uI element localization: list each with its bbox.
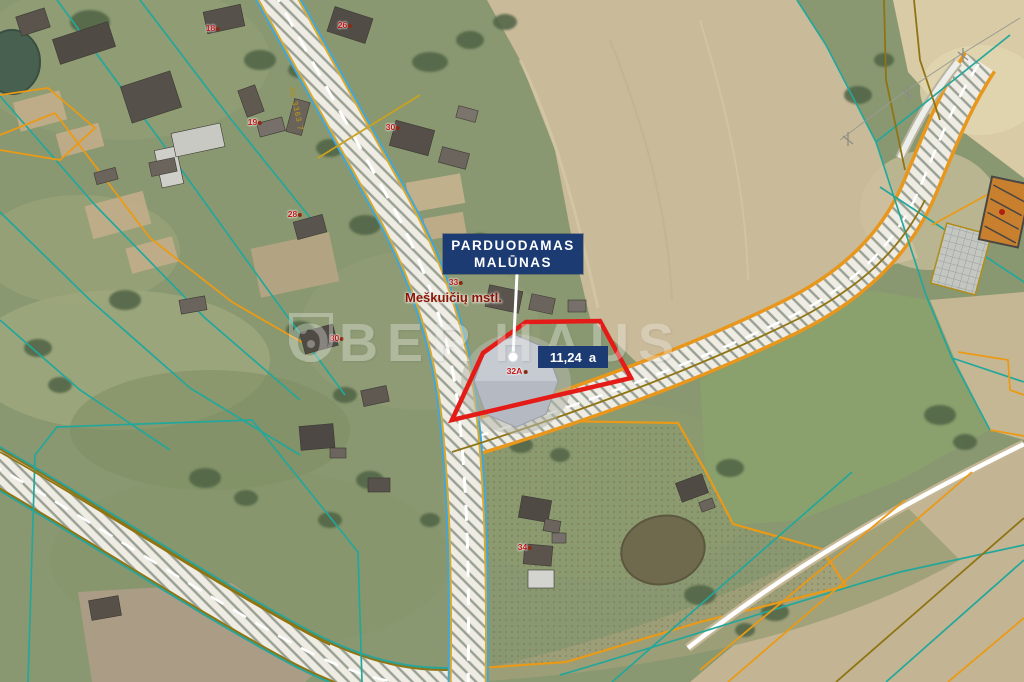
house-number-label: 32A — [507, 366, 528, 376]
house-number-label: 34 — [518, 542, 532, 552]
for-sale-line1: PARDUODAMAS — [451, 237, 575, 254]
house-number-label: 19 — [248, 117, 262, 127]
area-label: 11,24 a — [538, 346, 608, 368]
for-sale-label: PARDUODAMAS MALŪNAS — [443, 234, 583, 274]
house-number-label: 30 — [386, 122, 400, 132]
house-number-label: 33 — [449, 277, 463, 287]
house-number-label: 30 — [330, 333, 344, 343]
map-canvas — [0, 0, 1024, 682]
for-sale-line2: MALŪNAS — [474, 254, 552, 271]
house-number-label: 18 — [206, 23, 220, 33]
aerial-map-image: OBER HAUS PARDUODAMAS MALŪNAS 11,24 a Me… — [0, 0, 1024, 682]
house-number-label: 26 — [338, 20, 352, 30]
place-name-label: Meškuičių mstl. — [405, 290, 502, 305]
house-number-label: 28 — [288, 209, 302, 219]
